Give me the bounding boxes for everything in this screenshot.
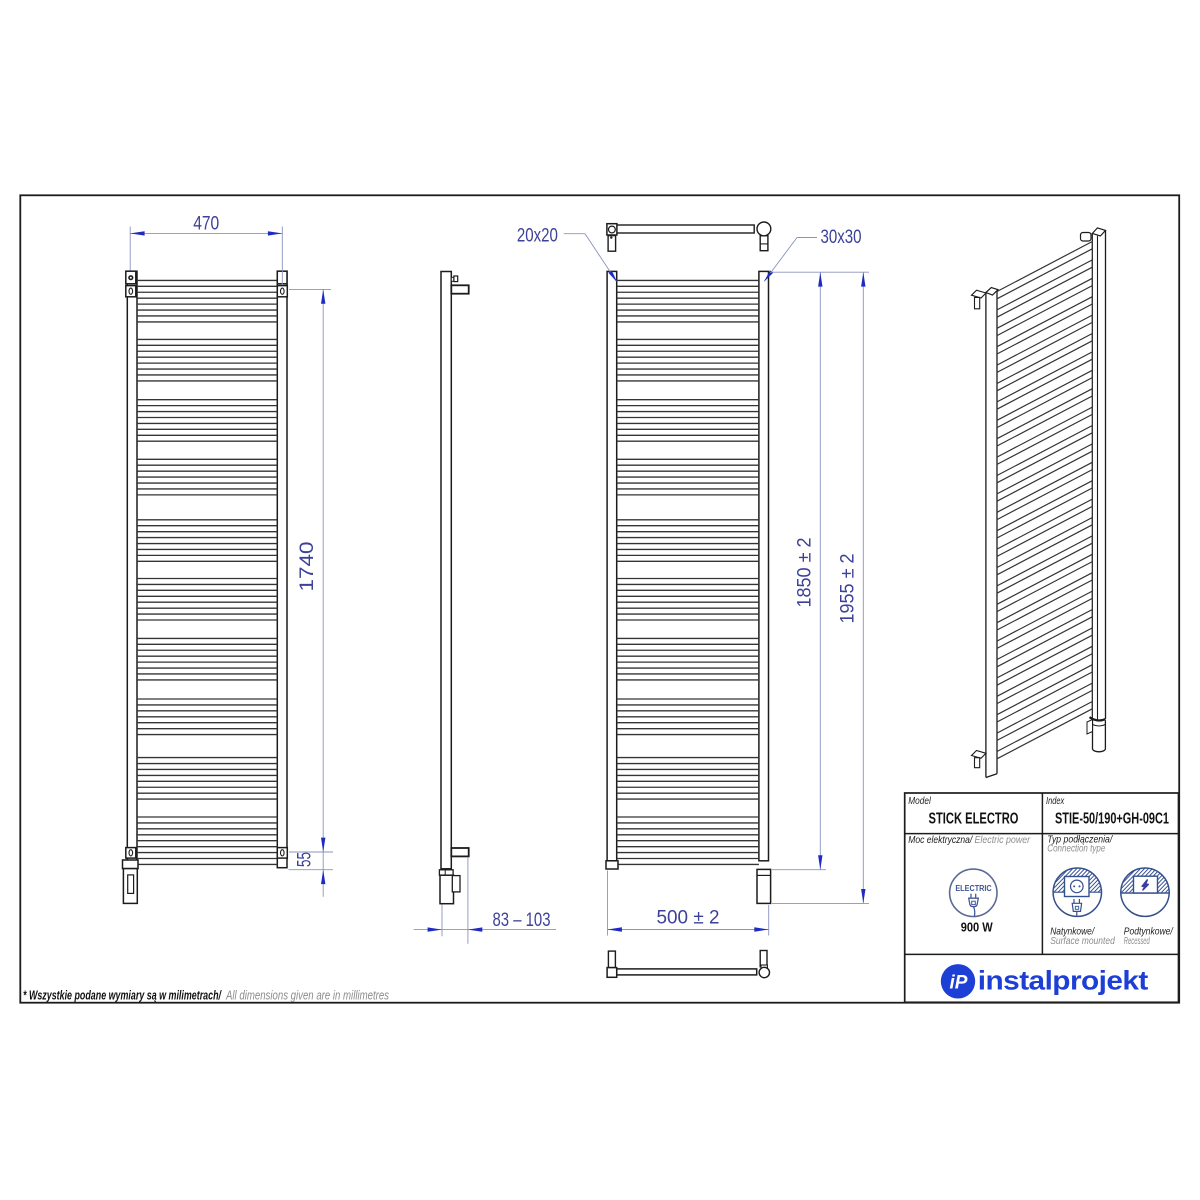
svg-text:1740: 1740	[297, 542, 318, 592]
svg-text:500 ± 2: 500 ± 2	[657, 907, 720, 928]
svg-text:1850 ± 2: 1850 ± 2	[795, 538, 816, 608]
svg-text:900 W: 900 W	[961, 921, 993, 935]
svg-text:55: 55	[294, 852, 315, 867]
svg-text:STIE-50/190+GH-09C1: STIE-50/190+GH-09C1	[1055, 811, 1169, 828]
svg-text:Recessed: Recessed	[1124, 935, 1151, 947]
svg-text:1955 ± 2: 1955 ± 2	[838, 554, 859, 624]
svg-text:STICK ELECTRO: STICK ELECTRO	[929, 811, 1019, 828]
svg-text:470: 470	[193, 214, 219, 235]
svg-text:20x20: 20x20	[517, 226, 558, 247]
svg-text:Index: Index	[1046, 795, 1065, 807]
svg-text:instalprojekt: instalprojekt	[978, 965, 1149, 995]
svg-text:83 – 103: 83 – 103	[493, 910, 551, 931]
svg-text:* Wszystkie podane wymiary są: * Wszystkie podane wymiary są w milimetr…	[23, 988, 222, 1002]
svg-text:All dimensions given are in mi: All dimensions given are in millimetres	[225, 988, 389, 1002]
svg-text:Model: Model	[908, 795, 931, 807]
svg-text:Moc elektryczna/: Moc elektryczna/	[908, 834, 973, 846]
svg-text:Connection type: Connection type	[1047, 843, 1105, 854]
svg-text:iP: iP	[950, 973, 968, 994]
svg-text:30x30: 30x30	[821, 227, 862, 248]
svg-text:Surface mounted: Surface mounted	[1050, 935, 1116, 947]
svg-text:Electric power: Electric power	[975, 834, 1031, 846]
svg-text:ELECTRIC: ELECTRIC	[955, 884, 992, 893]
